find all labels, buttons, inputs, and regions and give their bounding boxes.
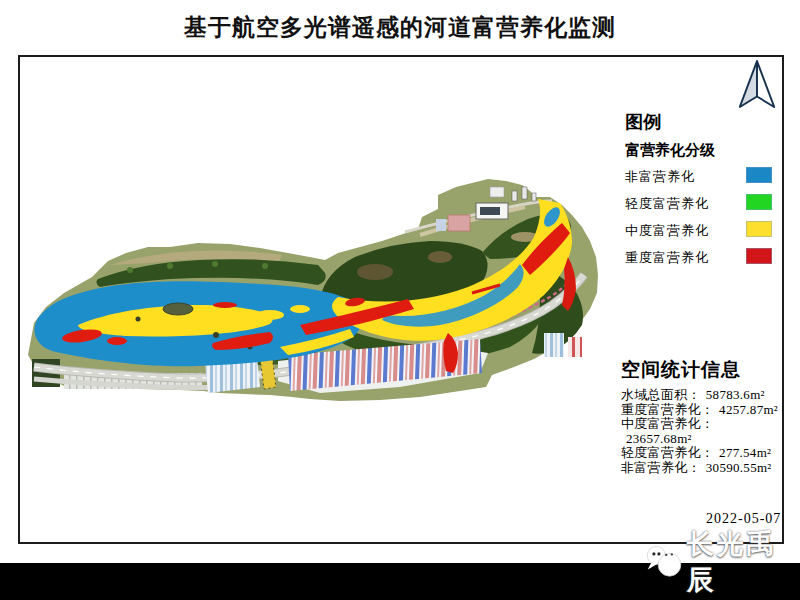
brand-logo: 长光禹辰 (644, 542, 800, 582)
legend-item-label: 轻度富营养化 (625, 196, 709, 211)
legend-title: 图例 (625, 110, 661, 134)
stat-value: 23657.68m² (626, 431, 692, 446)
statistics-rows: 水域总面积：58783.6m² 重度富营养化：4257.87m² 中度富营养化：… (621, 388, 782, 475)
legend-group-title: 富营养化分级 (625, 141, 715, 160)
legend-swatch (746, 194, 772, 210)
brand-name: 长光禹辰 (687, 526, 800, 598)
stat-row: 水域总面积：58783.6m² (621, 388, 782, 403)
stat-row: 重度富营养化：4257.87m² (621, 403, 782, 418)
stat-label: 水域总面积： (621, 387, 701, 402)
stat-row: 中度富营养化：23657.68m² (621, 417, 782, 446)
statistics-title: 空间统计信息 (621, 357, 741, 383)
legend-swatch (746, 248, 772, 264)
page-title: 基于航空多光谱遥感的河道富营养化监测 (0, 12, 800, 43)
monitoring-poster: 基于航空多光谱遥感的河道富营养化监测 (0, 0, 800, 600)
legend-item-label: 中度富营养化 (625, 223, 709, 238)
legend-item-label: 重度富营养化 (625, 250, 709, 265)
stat-label: 非富营养化： (621, 460, 701, 475)
legend-item-label: 非富营养化 (625, 169, 695, 184)
stat-label: 中度富营养化： (621, 416, 714, 431)
stat-label: 重度富营养化： (621, 402, 714, 417)
legend-swatch (746, 221, 772, 237)
legend-item: 重度富营养化 (625, 248, 775, 266)
stat-value: 4257.87m² (719, 402, 778, 417)
north-arrow-icon (736, 60, 778, 110)
map-frame: 图例 富营养化分级 非富营养化 轻度富营养化 中度富营养化 重度富营养化 空间统… (18, 55, 784, 544)
stat-label: 轻度富营养化： (621, 445, 714, 460)
legend-item: 轻度富营养化 (625, 194, 775, 212)
stat-row: 轻度富营养化：277.54m² (621, 446, 782, 461)
legend-swatch (746, 167, 772, 183)
brand-icon (644, 542, 682, 582)
legend-item: 非富营养化 (625, 167, 775, 185)
stat-value: 58783.6m² (706, 387, 765, 402)
legend-item: 中度富营养化 (625, 221, 775, 239)
stat-value: 30590.55m² (706, 460, 772, 475)
map-date: 2022-05-07 (706, 511, 781, 527)
stat-row: 非富营养化：30590.55m² (621, 461, 782, 476)
stat-value: 277.54m² (719, 445, 771, 460)
